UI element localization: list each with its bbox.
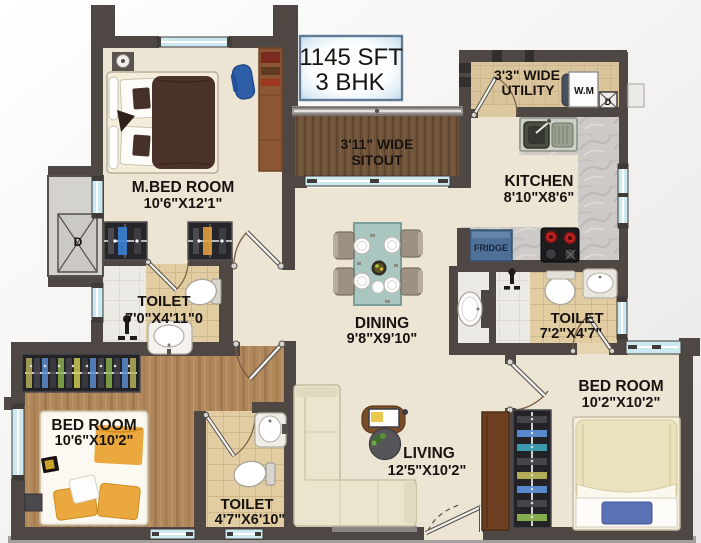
svg-text:8'10"X8'6": 8'10"X8'6" bbox=[504, 190, 575, 206]
svg-text:7'2"X4'7": 7'2"X4'7" bbox=[540, 326, 603, 342]
svg-text:TOILET: TOILET bbox=[137, 293, 190, 310]
svg-text:BED ROOM: BED ROOM bbox=[578, 378, 663, 395]
svg-text:KITCHEN: KITCHEN bbox=[505, 173, 574, 190]
svg-text:W.M: W.M bbox=[574, 86, 594, 97]
svg-text:3 BHK: 3 BHK bbox=[315, 69, 384, 96]
svg-text:D: D bbox=[605, 97, 612, 107]
svg-text:1145 SFT: 1145 SFT bbox=[299, 44, 403, 71]
svg-text:12'5"X10'2": 12'5"X10'2" bbox=[388, 463, 467, 479]
svg-text:4'7"X6'10": 4'7"X6'10" bbox=[215, 512, 286, 528]
svg-text:DINING: DINING bbox=[355, 315, 409, 332]
svg-text:TOILET: TOILET bbox=[220, 496, 273, 513]
svg-text:3'11" WIDE: 3'11" WIDE bbox=[341, 136, 414, 152]
svg-text:10'2"X10'2": 10'2"X10'2" bbox=[582, 395, 661, 411]
svg-text:TOILET: TOILET bbox=[550, 310, 603, 327]
svg-text:UTILITY: UTILITY bbox=[502, 82, 556, 98]
svg-text:10'6"X10'2": 10'6"X10'2" bbox=[55, 433, 134, 449]
svg-text:SITOUT: SITOUT bbox=[351, 152, 403, 168]
svg-text:7'0"X4'11"0: 7'0"X4'11"0 bbox=[125, 311, 203, 327]
svg-text:LIVING: LIVING bbox=[403, 445, 455, 462]
svg-text:10'6"X12'1": 10'6"X12'1" bbox=[144, 196, 223, 212]
svg-text:BED ROOM: BED ROOM bbox=[51, 417, 136, 434]
svg-text:3'3" WIDE: 3'3" WIDE bbox=[494, 67, 560, 83]
svg-text:9'8"X9'10": 9'8"X9'10" bbox=[347, 331, 418, 347]
svg-text:M.BED ROOM: M.BED ROOM bbox=[132, 179, 234, 196]
svg-text:FRIDGE: FRIDGE bbox=[474, 243, 508, 253]
svg-text:D: D bbox=[74, 235, 83, 249]
